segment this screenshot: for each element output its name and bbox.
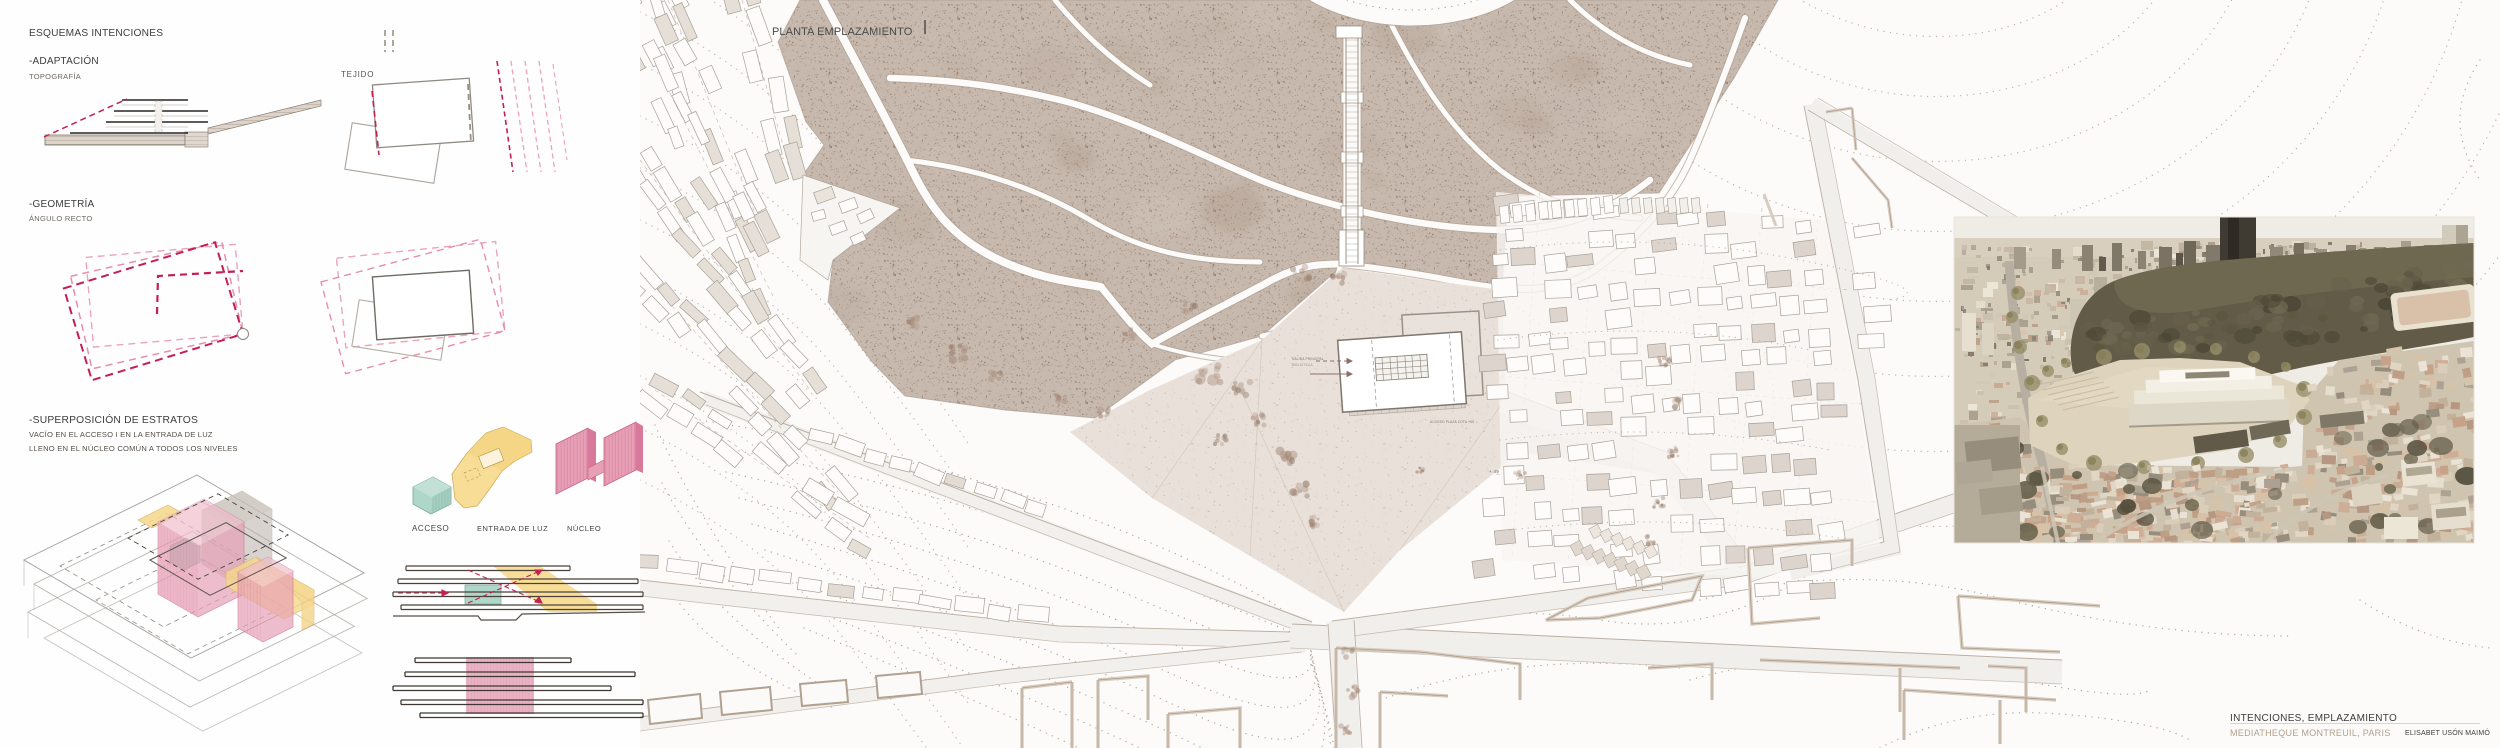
svg-text:ENTRADA DE LUZ: ENTRADA DE LUZ (477, 524, 548, 533)
svg-text:ESQUEMAS INTENCIONES: ESQUEMAS INTENCIONES (29, 28, 163, 39)
svg-text:ACCESO: ACCESO (412, 524, 449, 533)
svg-text:BIBLIOTECA: BIBLIOTECA (1292, 363, 1313, 367)
svg-text:ACCESO PLAZA COTA +65: ACCESO PLAZA COTA +65 (1430, 420, 1474, 424)
svg-text:-SUPERPOSICIÓN DE ESTRATOS: -SUPERPOSICIÓN DE ESTRATOS (29, 413, 198, 426)
svg-text:LLENO EN EL NÚCLEO COMÚN A TOD: LLENO EN EL NÚCLEO COMÚN A TODOS LOS NIV… (29, 444, 238, 453)
svg-text:PLANTA EMPLAZAMIENTO: PLANTA EMPLAZAMIENTO (772, 26, 913, 38)
svg-text:TOPOGRAFÍA: TOPOGRAFÍA (29, 72, 81, 81)
svg-text:INTENCIONES, EMPLAZAMIENTO: INTENCIONES, EMPLAZAMIENTO (2230, 713, 2397, 724)
svg-text:ELISABET USÓN MAIMÓ: ELISABET USÓN MAIMÓ (2405, 728, 2490, 737)
svg-text:ÁNGULO RECTO: ÁNGULO RECTO (29, 214, 92, 223)
svg-text:NÚCLEO: NÚCLEO (567, 524, 601, 533)
svg-text:-GEOMETRÍA: -GEOMETRÍA (29, 197, 94, 210)
svg-text:SALIDA PRINCIPAL: SALIDA PRINCIPAL (1292, 357, 1324, 361)
svg-text:VACÍO EN EL ACCESO I EN LA ENT: VACÍO EN EL ACCESO I EN LA ENTRADA DE LU… (29, 430, 213, 439)
svg-text:-ADAPTACIÓN: -ADAPTACIÓN (29, 54, 99, 67)
svg-text:+ 49: + 49 (1489, 469, 1499, 474)
svg-text:MEDIATHEQUE MONTREUIL, PARIS: MEDIATHEQUE MONTREUIL, PARIS (2230, 728, 2391, 738)
svg-text:TEJIDO: TEJIDO (341, 70, 374, 79)
